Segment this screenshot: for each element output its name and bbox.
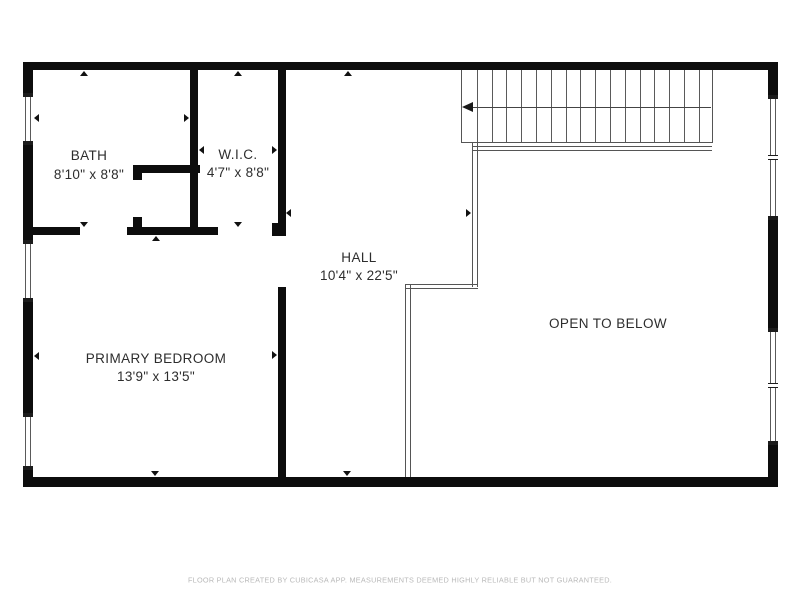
room-name-wic: W.I.C. [207,147,269,161]
room-dims-hall: 10'4" x 22'5" [320,269,398,283]
room-label-hall: HALL 10'4" x 22'5" [320,250,398,283]
extent-marker-bedroom-right-icon [272,351,277,359]
footer-disclaimer: FLOOR PLAN CREATED BY CUBICASA APP. MEAS… [188,576,612,585]
room-label-wic: W.I.C. 4'7" x 8'8" [207,147,269,180]
extent-marker-bedroom-up-icon [152,236,160,241]
extent-marker-wic-left-icon [199,146,204,154]
extent-marker-bedroom-down-icon [151,471,159,476]
extent-marker-wic-right-icon [272,146,277,154]
room-name-primary-bedroom: PRIMARY BEDROOM [86,351,227,365]
room-dims-bath: 8'10" x 8'8" [54,167,124,181]
room-name-bath: BATH [54,149,124,163]
floor-plan: BATH 8'10" x 8'8" W.I.C. 4'7" x 8'8" HAL… [0,0,800,600]
extent-marker-hall-up-icon [344,71,352,76]
room-label-bath: BATH 8'10" x 8'8" [54,149,124,182]
extent-marker-bath-left-icon [34,114,39,122]
extent-marker-wic-down-icon [234,222,242,227]
room-dims-wic: 4'7" x 8'8" [207,166,269,180]
extent-marker-bedroom-left-icon [34,352,39,360]
extent-marker-bath-right-icon [184,114,189,122]
room-label-primary-bedroom: PRIMARY BEDROOM 13'9" x 13'5" [86,351,227,384]
room-label-open-to-below: OPEN TO BELOW [549,317,667,331]
extent-marker-bath-down-icon [80,222,88,227]
extent-markers-layer [0,0,800,600]
extent-marker-wic-up-icon [234,71,242,76]
room-dims-primary-bedroom: 13'9" x 13'5" [86,370,227,384]
extent-marker-hall-left-icon [286,209,291,217]
extent-marker-bath-up-icon [80,71,88,76]
extent-marker-hall-down-icon [343,471,351,476]
room-name-hall: HALL [320,250,398,264]
extent-marker-hall-right-icon [466,209,471,217]
room-name-open-to-below: OPEN TO BELOW [549,317,667,331]
